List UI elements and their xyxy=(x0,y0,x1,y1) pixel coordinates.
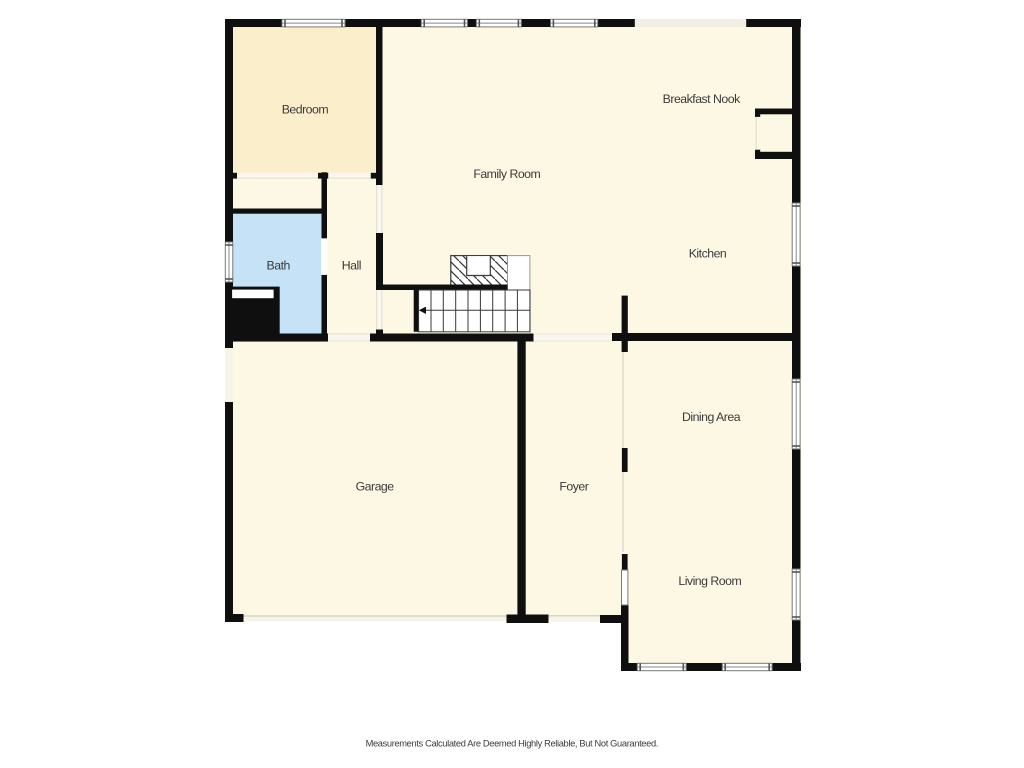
svg-text:Bedroom: Bedroom xyxy=(282,103,329,117)
svg-text:Dining Area: Dining Area xyxy=(682,410,741,424)
svg-text:Breakfast Nook: Breakfast Nook xyxy=(663,92,741,106)
svg-text:Bath: Bath xyxy=(267,259,291,273)
svg-text:Family Room: Family Room xyxy=(473,167,540,181)
svg-text:Measurements Calculated Are De: Measurements Calculated Are Deemed Highl… xyxy=(366,738,658,748)
svg-text:Foyer: Foyer xyxy=(559,480,588,494)
svg-text:Hall: Hall xyxy=(342,259,361,273)
svg-text:Living Room: Living Room xyxy=(678,574,741,588)
svg-text:Garage: Garage xyxy=(356,480,395,494)
svg-text:Kitchen: Kitchen xyxy=(689,247,727,261)
